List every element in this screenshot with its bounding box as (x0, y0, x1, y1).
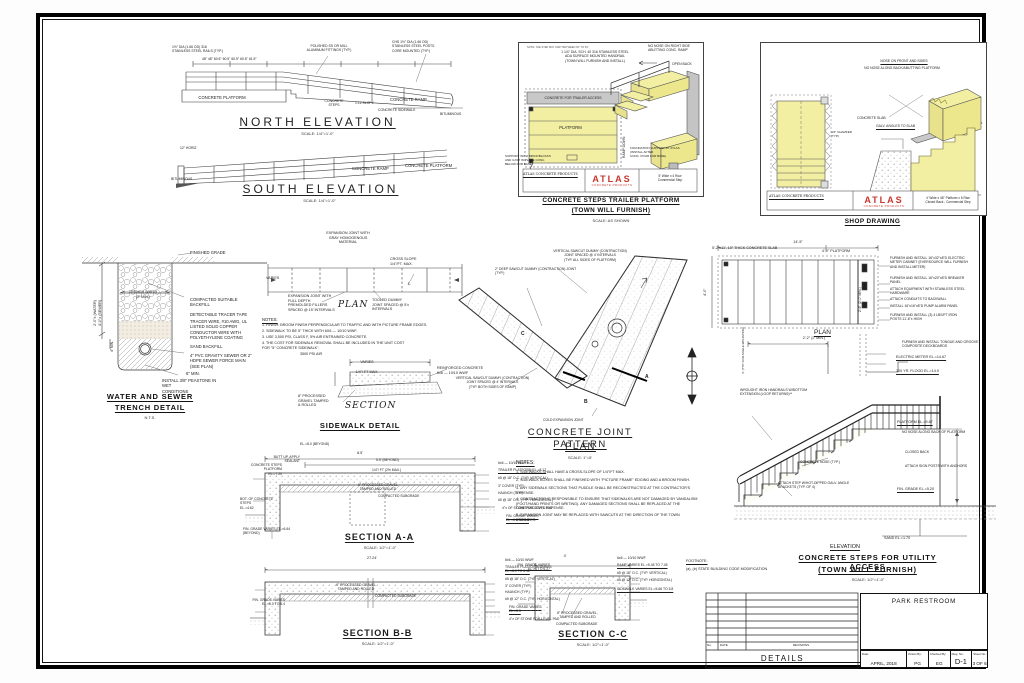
tb-drawn-value: PG (907, 661, 928, 666)
north-arrow-icon (683, 348, 701, 404)
drawing-sheet-canvas: 1½" DIA (1.66 OD) 316 STAINLESS STEEL RA… (0, 0, 1024, 683)
tb-date-cell: Date: APRIL, 2018 (861, 651, 906, 667)
up-deck-note: FURNISH AND INSTALL TONGUE AND GROOVE CO… (902, 340, 1002, 349)
ne-posts-note: CHS 1½" DIA (1.66 OD) STAINLESS STEEL PO… (392, 40, 464, 53)
tb-sheetno-value: 3 OF 6 (972, 661, 987, 666)
up-callout5: INSTALL 16"x16"x8"D PUMP ALARM PANEL (890, 304, 998, 308)
ne-rail-note: 1½" DIA (1.66 OD) 316 STAINLESS STEEL RA… (172, 45, 242, 54)
ne-dims: 48" 48" 60.5" 60.5" 60.5" 60.5" 61.5" (202, 57, 452, 61)
sbb-fin-grade-l: FIN. GRADE VARIES EL.=6.0 TO 5.4 (240, 598, 285, 607)
saa-scale: SCALE: 1/2"=1'-0" (345, 545, 415, 550)
scc-ramp: RAMP VARIES EL.=5.45 TO 7.45 (617, 563, 679, 567)
up-platform-dim: 4'-0" PLATFORM (812, 249, 860, 254)
utility-elevation-drawing (732, 378, 1002, 546)
scc-scale: SCALE: 1/2"=1'-0" (558, 642, 628, 647)
sbb-title: SECTION B-B (330, 628, 425, 639)
tb-checked-cell: Checked By: EG (928, 651, 950, 667)
tb-date-col: DATE (720, 644, 745, 648)
tb-dwg-value: D-1 (951, 657, 972, 666)
general-note-3: 3. ANY SIDEWALK SECTIONS THAT PUDDLE SHA… (516, 486, 706, 495)
ue-fin-grade: FIN. GRADE EL.=5.20 (897, 487, 957, 492)
se-horiz-label: 12" HORIZ (180, 146, 208, 150)
sw-exp-joint: EXPANSION JOINT WITH FULL DEPTH PREMOLDE… (288, 294, 338, 313)
ue-brackets: ATTACH STEP W/HOT-DIPPED GALV. ANGLE BRA… (778, 481, 863, 490)
td-4min: 4" MIN. (110, 341, 114, 352)
scc-sidewalk: SIDEWALK VARIES EL.=5.66 TO 5.8 (617, 587, 681, 591)
tp-atlas-co: ATLAS CONCRETE PRODUCTS (523, 172, 583, 176)
ne-fittings-note: POLISHED SS OR MILL ALUMINUM FITTINGS (T… (293, 44, 365, 53)
up-dim-overall: 14'-5" (778, 240, 818, 245)
footnote-title: FOOTNOTE: (686, 559, 721, 564)
tb-project: PARK RESTROOM (865, 598, 983, 606)
sd-atlas-co: ATLAS CONCRETE PRODUCTS (769, 194, 847, 198)
sw-plan-label: PLAN (338, 300, 388, 311)
south-elevation-title: SOUTH ELEVATION (238, 182, 403, 197)
sw-varies: VARIES (266, 276, 288, 281)
tb-drawn-cell: Drawn By: PG (906, 651, 928, 667)
sw-note2: 2. SIDEWALK TO BE 5" THICK WITH 6X6 — 10… (262, 329, 467, 334)
north-elevation-title: NORTH ELEVATION (235, 115, 400, 130)
up-callout4: ATTACH CONDUITS TO BACKWALL (890, 297, 998, 301)
tb-checked-value: EG (929, 661, 950, 666)
jp-scale: SCALE: 1"=5' (556, 455, 604, 460)
sw-section-label: SECTION (345, 401, 405, 412)
ue-sign-posts: ATTACH SIGN POSTS WITH ANCHORS (905, 464, 990, 468)
title-block-strip: Date: APRIL, 2018 Drawn By: PG Checked B… (860, 650, 988, 668)
south-elevation-scale: SCALE: 1/4"=1'-0" (272, 198, 367, 203)
saa-cover: 3" COVER (TYP.) (498, 484, 543, 488)
sd-no-nose-note: NO NOSE ALONG BACK/ABUTTING PLATFORM (852, 66, 952, 70)
ue-nose: CONCRETE NOSE (TYP.) (800, 460, 848, 464)
sw-varies2: VARIES (352, 360, 382, 365)
tp-header-label: CONCRETE FOR TRAILER ACCESS (528, 96, 618, 100)
ue-handrail-note: WROUGHT IRON HANDRAILS W/BOTTOM EXTENSIO… (740, 388, 815, 397)
td-title2: TRENCH DETAIL (100, 403, 200, 412)
saa-platform: CONCRETE STEPS PLATFORM EL.=7.20 (240, 463, 282, 476)
saa-gravel: 6" PROCESSED GRAVEL TAMPED AND ROLLED (352, 483, 404, 492)
up-callout6: FURNISH AND INSTALL (3) 4 LBS/FT IRON PO… (890, 313, 998, 322)
ne-steps-label: CONCRETE STEPS (318, 99, 350, 108)
jp-cold-joint: COLD EXPANSION JOINT (543, 418, 598, 422)
ne-sidewalk-label: CONCRETE SIDEWALK (378, 108, 428, 112)
tp-title: CONCRETE STEPS TRAILER PLATFORM (518, 197, 704, 205)
saa-wwf: 6x6 — 10/10 WWF (498, 461, 546, 465)
scc-vert: #5 @ 18" O.C. (TYP. VERTICAL) (617, 571, 679, 575)
td-title1: WATER AND SEWER (100, 392, 200, 401)
sw-cross-slope: CROSS SLOPE 1/4"/FT. MAX. (390, 257, 425, 266)
td-tracer-tape: DETECTABLE TRACER TAPE (190, 312, 252, 317)
sw-exp-joint-top: EXPANSION JOINT WITH GRAY HOMOGENOUS MAT… (320, 231, 376, 245)
scc-fin-grade: FIN. GRADE VARIES EL.=6 TO 6.27 (508, 563, 550, 572)
sw-note3: 3. USE 3,500 PSI, CLASS F, 5% AIR ENTRAI… (262, 335, 467, 340)
td-pipe: 4" PVC GRAVITY SEWER OR 2" HDPE SEWER FO… (190, 353, 260, 369)
jp-marker-b: B (584, 399, 592, 405)
sbb-scale: SCALE: 1/2"=1'-0" (343, 641, 413, 646)
sd-atlas-sub: CONCRETE PRODUCTS (856, 205, 912, 208)
tp-small-note: NOTE: THE STEP MAY VARY BETWEEN 52" TO 5… (527, 46, 647, 49)
up-mid-dim: 2'-6" (2'-0" MIN.) (858, 287, 862, 312)
saa-fin-grade-r: FIN. GRADE VARIES EL.=6.4 TO 5.3 (506, 514, 554, 523)
tp-no-nose-note: NO NOSE ON RIGHT SIDE ABUTTING CONC. RAM… (648, 44, 703, 53)
se-bituminous-label: BITUMINOUS (171, 177, 201, 181)
saa-horiz: #5 @ 18" O.C. (TYP. HORIZONTAL) (498, 498, 562, 502)
saa-subgrade: COMPACTED SUBGRADE (378, 494, 428, 498)
saa-el-beyond: EL.=8.0 (BEYOND) (300, 442, 345, 446)
tb-sheet-title: DETAILS (730, 654, 835, 664)
ue-elevation-label: ELEVATION (815, 544, 875, 551)
tp-product: 5' Wide x 4 Row Commercial Step (642, 174, 698, 182)
saa-dim1: 8.5' (345, 451, 375, 456)
se-platform-label: CONCRETE PLATFORM (405, 163, 460, 168)
tp-title2: (TOWN WILL FURNISH) (546, 207, 676, 215)
ne-slope-label: 1:12 SLOPE (355, 101, 385, 105)
se-ramp-label: CONCRETE RAMP (352, 166, 397, 171)
tp-scale: SCALE: AS SHOWN (566, 218, 656, 223)
sd-slab-label: CONCRETE SLAB (857, 116, 899, 120)
sw-slope2: 1/4"/ FT MAX. (348, 370, 386, 375)
tp-handrail-note: 1 1/4" DIA. SCH. 40 316 STAINLESS STEEL … (536, 50, 654, 63)
sd-chamfer-label: 3/4" CHAMFER (TYP.) (831, 131, 865, 139)
saa-bot: BOT. OF CONCRETE STEPS EL.=4.62 (240, 497, 285, 510)
sbb-gravel: 6" PROCESSED GRAVEL TAMPED AND ROLLED (330, 583, 382, 592)
sd-title: SHOP DRAWING (810, 218, 935, 226)
scc-wwf: 6x6 — 10/10 WWF (617, 556, 665, 560)
sw-gravel: 8" PROCESSED GRAVEL TAMPED & ROLLED (298, 394, 340, 408)
jp-marker-a: A (645, 374, 653, 380)
ne-ramp-label: CONCRETE RAMP (390, 97, 435, 102)
td-finished-grade: FINISHED GRADE (190, 250, 238, 255)
ue-sand-el: SAND EL.=1.70 (884, 536, 929, 541)
up-angle-note: 4" (TYP. FOR ANGLE MOUNTING) (742, 327, 746, 374)
td-6min: 6" MIN. (186, 371, 211, 376)
scc-dim: 4' (555, 554, 575, 559)
tb-drawn-label: Drawn By: (908, 652, 921, 656)
tb-checked-label: Checked By: (930, 652, 946, 656)
up-meter-el: ELECTRIC METER EL.=14.67 (896, 355, 971, 360)
tb-dwg-cell: Dwg. No.: D-1 (950, 651, 972, 667)
saa-slope: 1/4"/ FT (2% MAX.) (372, 468, 410, 472)
tp-atlas-sub: CONCRETE PRODUCTS (586, 184, 638, 187)
sbb-subgrade: COMPACTED SUBGRADE (375, 594, 425, 598)
footnote-text: (a), (b) STATE BUILDING CODE MODIFICATIO… (686, 567, 796, 572)
td-scale: N.T.S. (135, 415, 165, 420)
scc-title: SECTION C-C (548, 629, 638, 640)
sw-notes-title: NOTES: (262, 317, 292, 322)
tp-foundation-note: FOUNDATION SUPPORT BY ATLAS (INSTALL AFT… (630, 147, 688, 158)
tb-date-value: APRIL, 2018 (861, 661, 906, 666)
up-slab-note: 5'-2"x11', 10" THICK CONCRETE SLAB (712, 246, 797, 251)
tp-platform-label: PLATFORM (543, 125, 598, 130)
ue-scale: SCALE: 1/2"=1'-0" (833, 577, 903, 582)
saa-stone: 4"± OF STONE FOR LEVEL PAD (502, 506, 560, 510)
td-tracer-wire: TRACER WIRE, #10 AWG, UL LISTED SOLID CO… (190, 319, 256, 340)
tp-support-note: SUPPORT WITH BRICK/BLOCKS AND CAST IN PL… (505, 155, 563, 166)
tb-sheetno-label: Sheet No.: (973, 652, 987, 656)
sbb-dim: 27.24' (352, 556, 392, 561)
sw-note4: 4. THE COST FOR SIDEWALK REMOVAL SHALL B… (262, 341, 467, 350)
jp-note3: VERTICAL SAWCUT DUMMY (CONTRACTION) JOIN… (450, 376, 535, 389)
td-trench-width: TRENCH WIDTH (2' MIN.) (122, 290, 164, 299)
td-depth-dim: 2'-0"± (WATER) 4'-0"± (SEWER) (93, 288, 102, 338)
sd-product: 4' Wide x 48" Platform x 6 Rise Closed B… (916, 196, 980, 204)
sw-title: SIDEWALK DETAIL (300, 421, 420, 430)
tb-sheetno-cell: Sheet No.: 3 OF 6 (971, 651, 987, 667)
tp-open-back-note: OPEN BACK (672, 62, 702, 66)
saa-dim2: 5.5' (BEYOND) (365, 458, 410, 462)
sw-note1: 1. FINISH: BROOM FINISH PERPENDICULAR TO… (262, 323, 467, 328)
up-callout2: FURNISH AND INSTALL 16"x20"x8"D BREAKER … (890, 276, 998, 285)
ue-closed-back: CLOSED BACK (905, 450, 950, 454)
jp-marker-c: C (521, 331, 529, 337)
jp-note2: 2" DEEP SAWCUT DUMMY (CONTRACTION) JOINT… (495, 267, 585, 276)
td-sand: SAND BACKFILL (190, 344, 235, 349)
up-callout3: ATTACH EQUIPMENT WITH STAINLESS STEEL HA… (890, 287, 998, 296)
ue-no-nose: NO NOSE ALONG BACK OF PLATFORM (902, 430, 990, 434)
up-left-dim: 4'-0" (703, 289, 708, 296)
tp-ramp-down-label: RAMP DOWN (622, 137, 626, 158)
sd-nose-note: NOSE ON FRONT AND SIDES (868, 59, 940, 63)
td-backfill: COMPACTED SUITABLE BACKFILL (190, 297, 252, 308)
ne-platform-label: CONCRETE PLATFORM (192, 95, 252, 100)
tb-no-col: No. (707, 644, 718, 648)
scc-horiz: #5 @ 12" O.C. (TYP. HORIZONTAL) (617, 578, 679, 582)
saa-trailer-el: TRAILER PLATFORM EL.=8.12 (498, 468, 556, 472)
ne-bituminous-label: BITUMINOUS (440, 112, 472, 116)
saa-title: SECTION A-A (332, 532, 427, 543)
tb-date-label: Date: (862, 652, 869, 656)
scc-subgrade: COMPACTED SUBGRADE (556, 622, 606, 626)
tb-dwg-label: Dwg. No.: (952, 652, 965, 656)
saa-fin-grade-l: FIN. GRADE VARIES EL.=6.64 (BEYOND) (243, 527, 293, 536)
north-elevation-scale: SCALE: 1/4"=1'-0" (270, 131, 365, 136)
up-dim-bottom: 2'-2" (2' MIN.) (790, 336, 838, 341)
ue-platform-el: PLATFORM EL.=9.67 (897, 420, 957, 425)
saa-haunch: HAUNCH (TYP.) (498, 491, 543, 495)
jp-note1: VERTICAL SAWCUT DUMMY (CONTRACTION) JOIN… (545, 249, 635, 262)
scc-gravel: 8" PROCESSED GRAVEL, TAMPED AND ROLLED (550, 611, 605, 620)
saa-vert: #5 @ 18" O.C. (TYP. VERTICAL) (498, 476, 560, 480)
jp-title2: PLAN (553, 441, 608, 453)
ue-title2: (TOWN WILL FURNISH) (810, 565, 925, 574)
sd-angles-label: GALV. ANGLES TO SLAB (876, 124, 932, 128)
tb-revisions-col: REVISIONS (746, 644, 856, 648)
up-flood-el: 100 YR. FLOOD EL.=14.0 (896, 369, 971, 374)
up-callout1: FURNISH AND INSTALL 16"x32"x8"D ELECTRIC… (890, 256, 998, 269)
